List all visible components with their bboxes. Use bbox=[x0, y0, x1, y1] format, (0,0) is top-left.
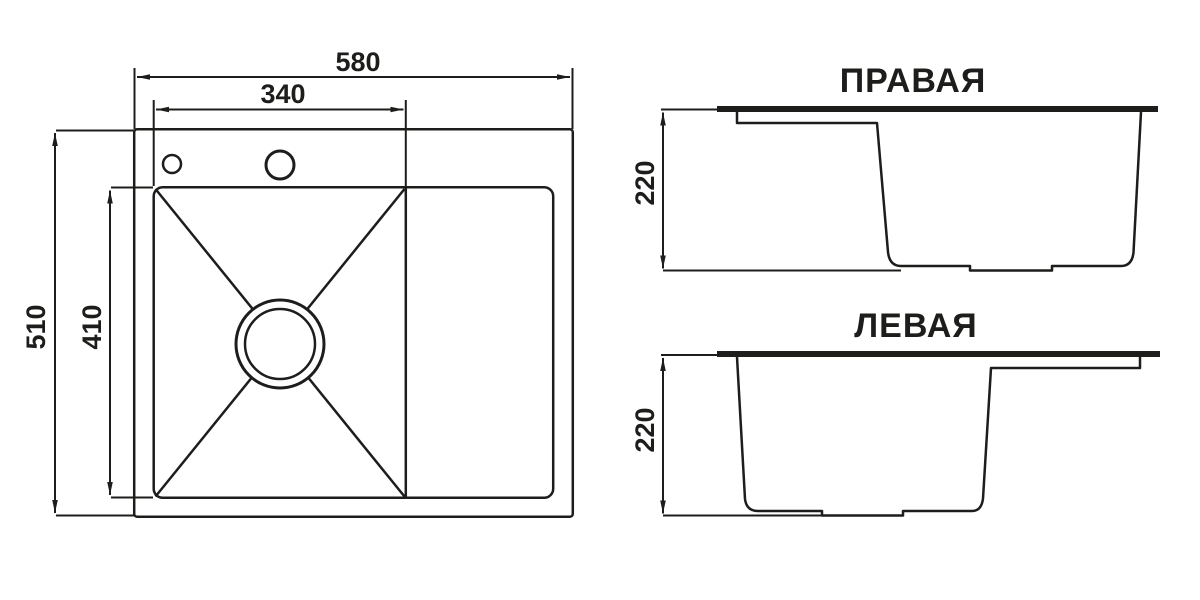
dim-410-label: 410 bbox=[77, 304, 107, 349]
side-view-right: ПРАВАЯ 220 bbox=[630, 62, 1158, 271]
sink-dimension-diagram: 580 340 510 410 bbox=[0, 0, 1200, 600]
dim-510-label: 510 bbox=[21, 304, 51, 349]
left-view-rim-bar bbox=[717, 351, 1160, 357]
faucet-hole-large bbox=[266, 151, 294, 179]
left-view-title: ЛЕВАЯ bbox=[854, 307, 977, 345]
dim-580-label: 580 bbox=[335, 47, 380, 77]
side-view-left: ЛЕВАЯ 220 bbox=[630, 307, 1160, 516]
dim-220l-label: 220 bbox=[630, 407, 660, 452]
sink-inner-bowl-outline bbox=[154, 187, 554, 498]
right-view-rim-bar bbox=[717, 106, 1158, 112]
dim-220r-label: 220 bbox=[630, 160, 660, 205]
drain-outer-circle bbox=[236, 300, 324, 388]
top-view: 580 340 510 410 bbox=[21, 47, 573, 517]
faucet-hole-small bbox=[163, 155, 181, 173]
right-view-profile bbox=[737, 112, 1141, 271]
dimension-overall-width: 580 bbox=[135, 47, 573, 129]
dimension-bowl-depth: 410 bbox=[77, 188, 153, 498]
dimension-right-depth: 220 bbox=[630, 110, 718, 269]
left-view-profile bbox=[737, 357, 1140, 516]
dimension-bowl-width: 340 bbox=[154, 79, 406, 186]
sink-drawing-svg: 580 340 510 410 bbox=[0, 0, 1200, 600]
dimension-left-depth: 220 bbox=[630, 355, 718, 514]
dim-340-label: 340 bbox=[260, 79, 305, 109]
right-view-title: ПРАВАЯ bbox=[840, 62, 987, 100]
